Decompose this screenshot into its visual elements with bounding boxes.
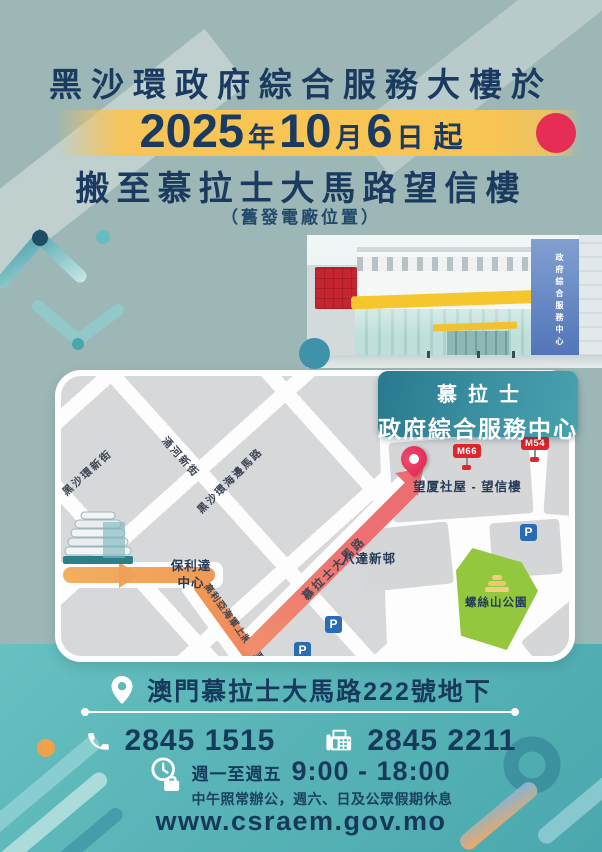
hours-row: 週一至週五 9:00 - 18:00 中午照常辦公，週六、日及公眾假期休息 <box>0 756 602 809</box>
hours-time: 9:00 - 18:00 <box>292 756 451 787</box>
website-url: www.csraem.gov.mo <box>0 806 602 837</box>
pavilion-icon <box>483 572 511 594</box>
address-text: 澳門慕拉士大馬路222號地下 <box>147 672 492 708</box>
hours-days: 週一至週五 <box>192 760 282 785</box>
date-month-unit: 月 <box>335 116 362 155</box>
side-building <box>579 235 602 368</box>
fax-number: 2845 2211 <box>367 724 516 758</box>
street-hac-sa-wan-new-label: 黑沙環新街 <box>61 446 115 499</box>
location-note: （舊發電廠位置） <box>0 203 602 228</box>
phone-number: 2845 1515 <box>125 724 276 758</box>
location-pin-icon <box>110 675 134 705</box>
pedestrian <box>477 351 480 358</box>
polytec-centre-label: 保利達中心 <box>167 558 215 592</box>
teal-dot <box>96 230 110 244</box>
bus-stop-m66: M66 <box>453 444 481 470</box>
street-level <box>307 355 602 368</box>
date-day-unit: 日 <box>396 116 423 155</box>
old-building-image <box>61 502 139 566</box>
phone-row: 2845 1515 2845 2211 <box>0 724 602 758</box>
service-centre-name: 慕拉士 <box>378 378 578 407</box>
bus-stop-sign: M66 <box>453 444 481 458</box>
poster-title: 黑沙環政府綜合服務大樓於 <box>0 58 602 106</box>
date-suffix: 起 <box>433 114 462 156</box>
bus-stop-pole <box>466 458 468 465</box>
parking-icon: P <box>325 616 342 633</box>
phone-icon <box>84 727 112 755</box>
hours-text: 週一至週五 9:00 - 18:00 中午照常辦公，週六、日及公眾假期休息 <box>192 756 453 809</box>
roof-strip <box>357 247 549 252</box>
window-row <box>357 257 549 271</box>
date-day: 6 <box>366 103 392 158</box>
relocation-date: 2025 年 10 月 6 日 起 <box>0 103 602 159</box>
divider-line <box>85 711 515 713</box>
address-row: 澳門慕拉士大馬路222號地下 <box>0 672 602 708</box>
date-month: 10 <box>279 103 331 158</box>
bus-stop-pole <box>534 450 536 457</box>
new-building-photo: 政府綜合服務中心 <box>307 235 602 368</box>
relocation-poster: 黑沙環政府綜合服務大樓於 2025 年 10 月 6 日 起 搬至慕拉士大馬路望… <box>0 0 602 852</box>
teal-circle-decoration <box>299 338 330 369</box>
zigzag-line <box>38 306 118 340</box>
date-year-unit: 年 <box>248 116 275 155</box>
street-chong-ho-label: 涌河新街 <box>158 433 203 480</box>
date-year: 2025 <box>140 103 245 158</box>
tower-vertical-sign: 政府綜合服務中心 <box>545 249 565 353</box>
parking-icon: P <box>294 642 311 656</box>
pedestrian <box>512 351 515 358</box>
parking-icon: P <box>520 524 537 541</box>
service-centre-title: 政府綜合服務中心 <box>378 410 578 444</box>
bus-stop-base <box>530 457 539 462</box>
street-hac-sa-wan-seaside-label: 黑沙環海邊馬路 <box>194 444 266 516</box>
mong-ha-block-label: 望厦社屋 - 望信樓 <box>413 476 522 495</box>
park-label: 螺絲山公園 <box>465 594 528 610</box>
service-centre-box: 慕拉士 政府綜合服務中心 <box>378 371 578 437</box>
pat-tat-label: 八達新邨 <box>342 548 396 567</box>
fax-icon <box>325 728 353 754</box>
bus-stop-base <box>462 465 471 470</box>
pedestrian <box>427 351 430 358</box>
clock-icon <box>150 756 182 792</box>
zigzag-line <box>2 238 80 282</box>
navy-dot <box>32 230 48 246</box>
teal-dot <box>72 338 84 350</box>
